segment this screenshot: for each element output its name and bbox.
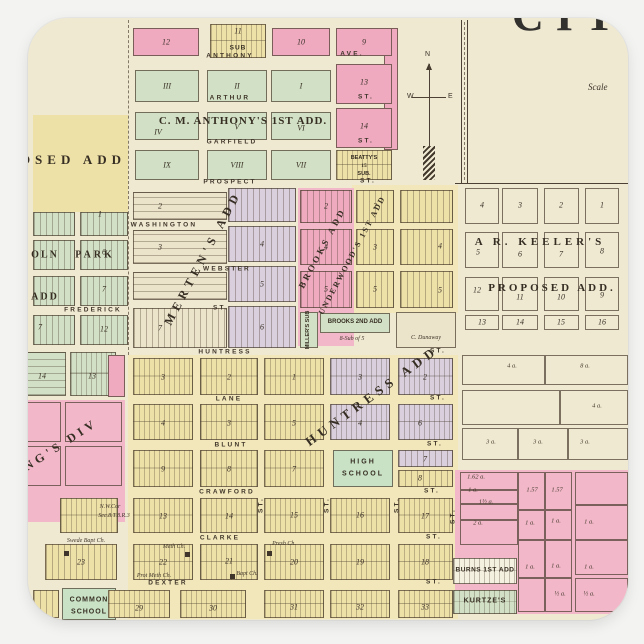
acreage-label: ½ a. <box>554 591 565 598</box>
street-label: PROSPECT <box>203 179 256 186</box>
street-label: ST. <box>360 178 376 185</box>
block-number: 14 <box>360 122 368 131</box>
boundary-line <box>455 183 628 184</box>
street-label: WASHINGTON <box>131 222 198 229</box>
block-number: 3 <box>518 201 522 210</box>
street-label: LANE <box>216 396 243 403</box>
block-number: 6 <box>102 248 106 257</box>
note-label: Sec.8.T.8.R.3 <box>98 513 129 519</box>
addition-label: A R. KEELER'S <box>475 236 606 248</box>
block-number: 30 <box>209 604 217 613</box>
map-block <box>33 590 59 618</box>
dashed-street-line <box>464 22 465 180</box>
acreage-label: 1.57 <box>551 487 562 494</box>
block-number: 6 <box>518 250 522 259</box>
addition-label: PROPOSED ADD. <box>488 282 616 294</box>
map-block <box>108 355 125 397</box>
note-label: Swede Bapt Ch. <box>67 538 105 544</box>
block-number: 3 <box>373 243 377 252</box>
block-number: 4 <box>438 242 442 251</box>
compass-arrow-feather-icon <box>423 146 435 180</box>
block-number: 2 <box>423 373 427 382</box>
block-number: 2 <box>227 373 231 382</box>
acreage-label: 1 a. <box>584 564 594 571</box>
acreage-label: 1 a. <box>551 518 561 525</box>
block-number: 1 <box>292 373 296 382</box>
block-number: 4 <box>161 419 165 428</box>
block-number: 2 <box>373 202 377 211</box>
block-number: 14 <box>516 318 524 327</box>
map-block <box>28 402 61 442</box>
church-marker-icon <box>267 551 272 556</box>
acreage-label: 4 a. <box>507 363 517 370</box>
block-number: 3 <box>358 373 362 382</box>
map-block <box>400 229 453 265</box>
block-number: 8 <box>227 465 231 474</box>
block-number: 7 <box>423 455 427 464</box>
map-sticker: CITY Scale N W E ANTHONYAVE.ARTHURST.GAR… <box>28 18 628 620</box>
addition-label: HIGH <box>350 459 376 466</box>
map-block <box>545 355 628 385</box>
block-number: 11 <box>234 27 241 36</box>
boundary-line <box>461 20 462 183</box>
block-number: 5 <box>476 248 480 257</box>
dashed-street-line <box>128 20 129 355</box>
addition-label: KURTZE'S <box>464 598 507 605</box>
addition-label: SCHOOL <box>342 471 384 478</box>
street-label: ST. <box>213 305 229 312</box>
block-number: 13 <box>360 78 368 87</box>
block-number: 12 <box>162 38 170 47</box>
map-block <box>396 312 456 348</box>
street-label: AVE. <box>340 51 364 58</box>
block-number: 16 <box>598 318 606 327</box>
block-number: 2 <box>324 202 328 211</box>
block-number: 15 <box>290 511 298 520</box>
map-block <box>575 540 628 575</box>
map-block <box>80 212 128 236</box>
acreage-label: 1 a. <box>551 563 561 570</box>
street-label: CLARKE <box>200 535 240 542</box>
block-number: II <box>234 82 239 91</box>
block-number: 10 <box>297 38 305 47</box>
addition-label: MILLER'S SUB <box>305 311 311 350</box>
block-number: 7 <box>38 323 42 332</box>
block-number: III <box>163 82 171 91</box>
block-number: 1 <box>98 210 102 219</box>
acreage-label: 3 a. <box>486 439 496 446</box>
block-number: 19 <box>356 558 364 567</box>
map-block <box>575 472 628 505</box>
map-block <box>460 504 518 520</box>
map-block <box>65 446 122 486</box>
boundary-line <box>429 64 430 148</box>
block-number: 12 <box>473 286 481 295</box>
map-block <box>333 450 393 487</box>
street-label: DEXTER <box>148 580 188 587</box>
acreage-label: 1 a. <box>525 520 535 527</box>
addition-label: ADD <box>31 292 59 303</box>
block-number: 2 <box>559 201 563 210</box>
church-marker-icon <box>64 551 69 556</box>
street-label-vertical: ST. <box>394 497 401 513</box>
block-number: 12 <box>100 325 108 334</box>
acreage-label: 2 a. <box>473 520 483 527</box>
map-block <box>462 355 545 385</box>
block-number: 4 <box>324 243 328 252</box>
street-label: GARFIELD <box>207 139 258 146</box>
block-number: 13 <box>159 512 167 521</box>
street-label: BLUNT <box>214 442 247 449</box>
note-label: Prot Meth Ch. <box>137 573 171 579</box>
block-number: 7 <box>559 250 563 259</box>
block-number: 3 <box>161 373 165 382</box>
block-number: 5 <box>438 286 442 295</box>
addition-label: SCHOOL <box>71 609 107 616</box>
acreage-label: 3 a. <box>533 439 543 446</box>
addition-label: 15 <box>361 163 367 169</box>
block-number: VII <box>296 161 306 170</box>
compass-north-label: N <box>425 51 430 58</box>
block-number: VI <box>297 124 305 133</box>
block-number: 23 <box>77 558 85 567</box>
street-label: CRAWFORD <box>199 489 255 496</box>
block-number: 4 <box>260 240 264 249</box>
map-block <box>545 510 572 540</box>
acreage-label: 1 a. <box>584 519 594 526</box>
map-block <box>568 428 628 460</box>
addition-label: BURNS 1ST ADD <box>456 567 515 574</box>
block-number: 29 <box>135 604 143 613</box>
block-number: I <box>300 82 303 91</box>
map-block <box>575 505 628 540</box>
addition-label: OSED ADD <box>28 152 126 168</box>
block-number: 16 <box>356 511 364 520</box>
compass-east-label: E <box>448 93 453 100</box>
street-label: WEBSTER <box>203 266 251 273</box>
street-label: ST. <box>424 488 440 495</box>
block-number: 5 <box>260 280 264 289</box>
block-number: 9 <box>161 465 165 474</box>
block-number: 3 <box>158 243 162 252</box>
block-number: 9 <box>600 291 604 300</box>
block-number: 21 <box>225 557 233 566</box>
block-number: 13 <box>478 318 486 327</box>
block-number: VIII <box>231 161 244 170</box>
block-number: 1 <box>600 201 604 210</box>
street-label: ST. <box>427 441 443 448</box>
block-number: 11 <box>516 293 523 302</box>
addition-label: OLN <box>31 250 59 261</box>
street-label: ARTHUR <box>210 95 251 102</box>
addition-label: SUB <box>230 45 247 52</box>
street-label-vertical: ST. <box>258 497 265 513</box>
map-title-fragment: CITY <box>512 18 628 41</box>
addition-label: PARK <box>75 250 115 261</box>
note-label: N.W.Cor <box>100 504 121 510</box>
street-label: ST. <box>426 579 442 586</box>
map-block <box>400 190 453 223</box>
block-number: 6 <box>418 419 422 428</box>
map-block <box>518 578 545 612</box>
street-label: ST. <box>358 94 374 101</box>
block-number: 7 <box>158 324 162 333</box>
block-number: V <box>235 123 240 132</box>
block-number: 22 <box>159 558 167 567</box>
map-block <box>400 271 453 308</box>
map-block <box>545 540 572 578</box>
block-number: 8 <box>600 247 604 256</box>
street-label: HUNTRESS <box>198 349 251 356</box>
acreage-label: 1½ a. <box>479 499 494 506</box>
scale-label: Scale <box>588 82 608 92</box>
acreage-label: 1.62 a. <box>467 474 485 481</box>
addition-label: BROOKS 2ND ADD <box>328 319 382 325</box>
map-block <box>462 390 560 425</box>
acreage-label: 1 a. <box>525 564 535 571</box>
block-number: 3 <box>227 419 231 428</box>
street-label-vertical: ST. <box>324 497 331 513</box>
note-label: C. Dunaway <box>411 335 441 341</box>
street-label: ST. <box>358 138 374 145</box>
acreage-label: 8 a. <box>580 363 590 370</box>
map-block <box>518 540 545 578</box>
church-marker-icon <box>230 574 235 579</box>
block-number: 20 <box>290 558 298 567</box>
addition-label: COMMON <box>70 597 109 604</box>
note-label: Presb Ch. <box>272 541 296 547</box>
street-label-vertical: ST. <box>450 508 457 524</box>
block-number: 4 <box>358 419 362 428</box>
block-number: 8 <box>418 474 422 483</box>
plat-map: CITY Scale N W E ANTHONYAVE.ARTHURST.GAR… <box>28 18 628 620</box>
block-number: IX <box>163 161 171 170</box>
map-block <box>398 404 453 440</box>
block-number: 4 <box>480 201 484 210</box>
addition-label: BEATTY'S <box>351 155 378 161</box>
block-number: IV <box>154 128 162 137</box>
map-block <box>398 470 453 487</box>
acreage-label: ½ a. <box>583 591 594 598</box>
block-number: 2 <box>158 202 162 211</box>
map-block <box>28 352 66 396</box>
block-number: 31 <box>290 603 298 612</box>
acreage-label: 1 a. <box>468 487 478 494</box>
street-label: FREDERICK <box>64 307 122 314</box>
block-number: 5 <box>292 419 296 428</box>
acreage-label: 4 a. <box>592 403 602 410</box>
acreage-label: 3 a. <box>580 439 590 446</box>
block-number: 13 <box>88 372 96 381</box>
addition-label: SUB. <box>357 171 370 177</box>
block-number: 32 <box>356 603 364 612</box>
note-label: 8-Sub of 5 <box>340 336 365 342</box>
block-number: 5 <box>373 285 377 294</box>
block-number: 10 <box>557 293 565 302</box>
church-marker-icon <box>185 552 190 557</box>
block-number: 7 <box>102 285 106 294</box>
map-block <box>133 192 227 220</box>
block-number: 33 <box>421 603 429 612</box>
map-block <box>460 520 518 545</box>
street-label: ST. <box>426 534 442 541</box>
street-label: ANTHONY <box>206 53 254 60</box>
block-number: 15 <box>557 318 565 327</box>
block-number: 5 <box>324 285 328 294</box>
map-block <box>33 212 75 236</box>
block-number: 17 <box>421 512 429 521</box>
block-number: 18 <box>421 558 429 567</box>
note-label: Meth Ch. <box>163 544 185 550</box>
note-label: Bapt Ch. <box>236 571 257 577</box>
boundary-line <box>467 20 468 183</box>
block-number: 14 <box>225 512 233 521</box>
block-number: 6 <box>260 323 264 332</box>
block-number: 7 <box>292 465 296 474</box>
block-number: 14 <box>38 372 46 381</box>
acreage-label: 1.57 <box>526 487 537 494</box>
street-label: ST. <box>430 395 446 402</box>
block-number: 9 <box>362 38 366 47</box>
